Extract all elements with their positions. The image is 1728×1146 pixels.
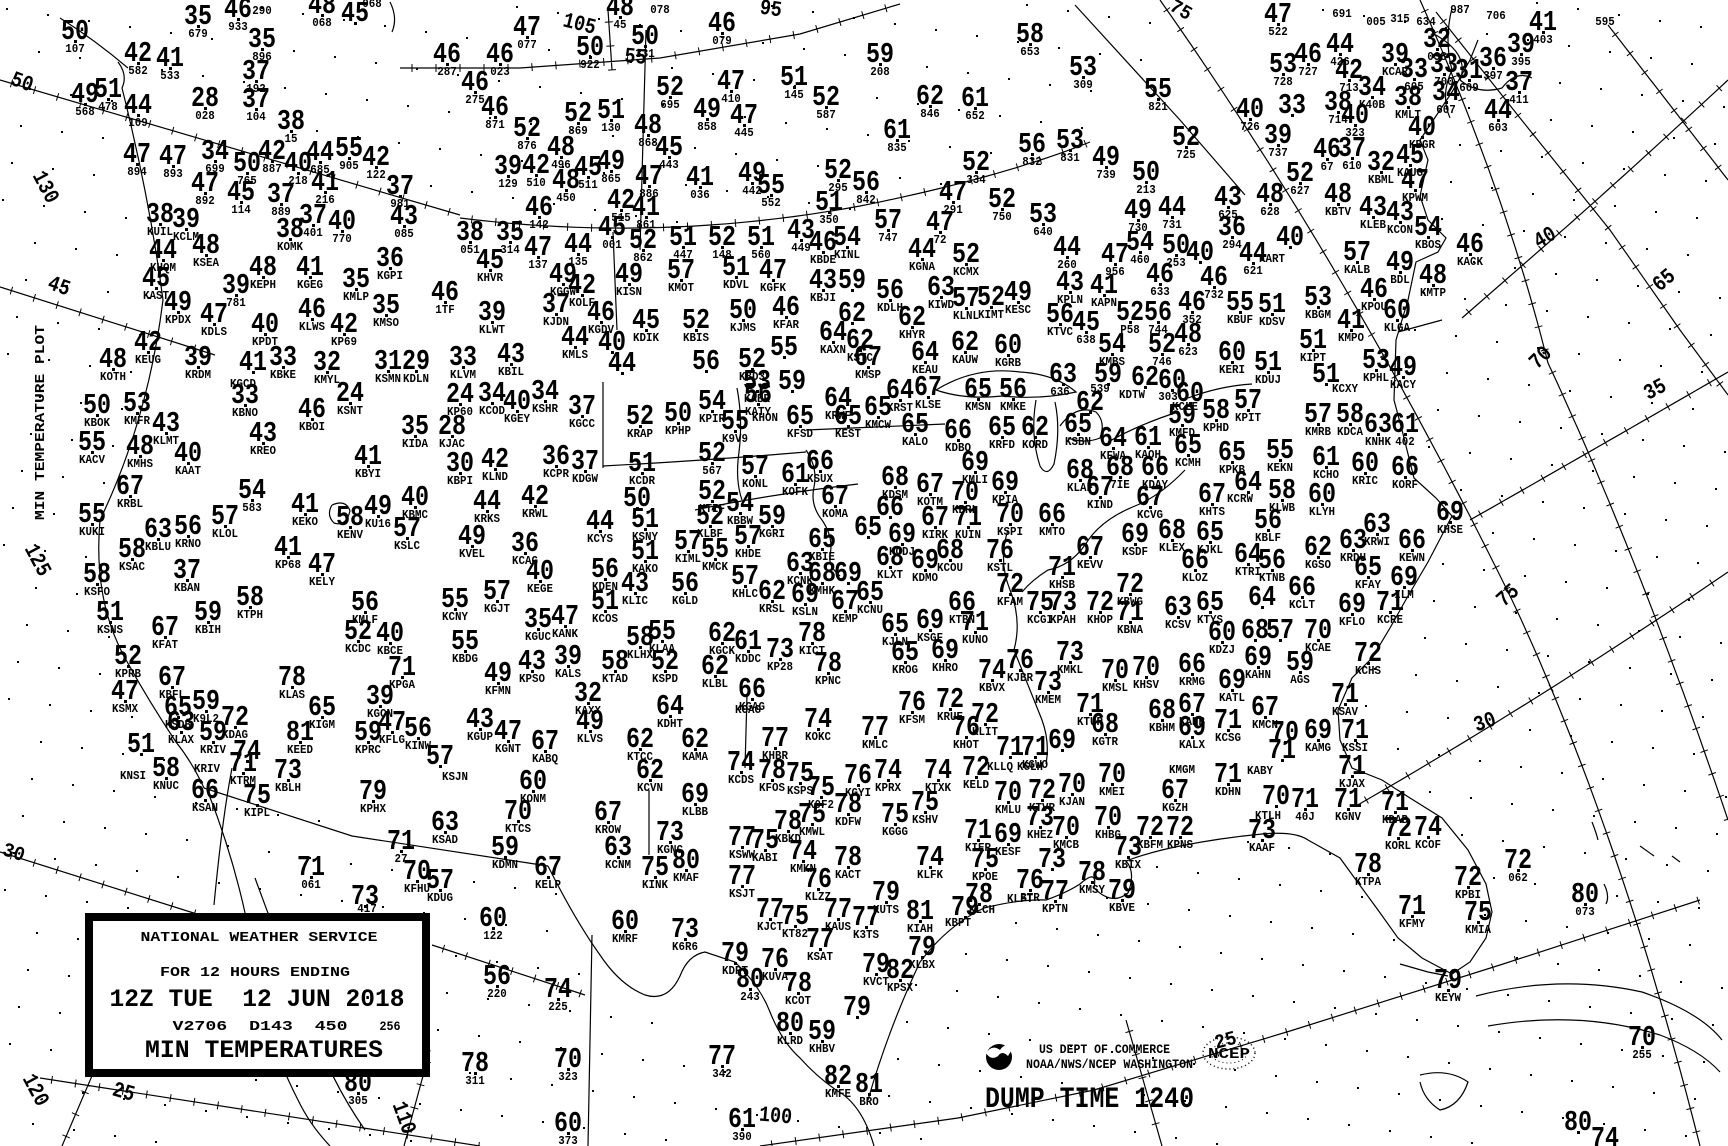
svg-text:KCON: KCON [1387,223,1413,237]
svg-text:KDLS: KDLS [201,325,227,339]
svg-text:KCSG: KCSG [1215,731,1241,745]
svg-text:KBLU: KBLU [145,540,171,554]
svg-text:KBJI: KBJI [810,291,836,305]
svg-text:449: 449 [791,241,811,255]
svg-text:KCSV: KCSV [1165,618,1192,632]
svg-text:KLOZ: KLOZ [1182,571,1208,585]
svg-text:858: 858 [697,120,717,134]
svg-text:KJBR: KJBR [1007,671,1034,685]
svg-text:KMHS: KMHS [127,457,153,471]
svg-text:MIN TEMPERATURE PLOT: MIN TEMPERATURE PLOT [33,325,49,520]
svg-text:KCLE: KCLE [1172,400,1198,414]
svg-text:NCEP: NCEP [1208,1046,1250,1063]
svg-text:KCXY: KCXY [1332,382,1359,396]
svg-text:KLBB: KLBB [682,805,708,819]
svg-text:KATL: KATL [1219,691,1245,705]
svg-text:KFAR: KFAR [773,318,800,332]
svg-text:KMOT: KMOT [668,281,694,295]
svg-text:K3TS: K3TS [853,928,879,942]
svg-text:KPNC: KPNC [815,674,841,688]
svg-text:KTVC: KTVC [1047,325,1073,339]
svg-text:511: 511 [578,178,598,192]
svg-text:KCYS: KCYS [587,532,613,546]
svg-text:KAUW: KAUW [952,353,979,367]
svg-text:107: 107 [65,42,85,56]
svg-text:311: 311 [465,1074,485,1088]
svg-text:078: 078 [650,3,670,17]
svg-text:KORD: KORD [1022,438,1048,452]
svg-text:KRNO: KRNO [175,537,201,551]
svg-text:KCOT: KCOT [785,994,811,1008]
svg-text:922: 922 [580,58,600,72]
svg-text:KMEI: KMEI [1099,785,1125,799]
svg-text:653: 653 [1020,45,1040,59]
svg-text:KGRI: KGRI [759,527,785,541]
svg-text:KFLO: KFLO [1339,615,1365,629]
svg-text:KLCH: KLCH [969,903,995,917]
svg-text:KSAD: KSAD [432,833,458,847]
svg-text:KEUG: KEUG [135,353,161,367]
svg-text:KP28: KP28 [767,660,793,674]
svg-text:KDVL: KDVL [723,278,749,292]
svg-text:KACV: KACV [79,453,106,467]
svg-text:59: 59 [838,264,866,297]
svg-text:KLGA: KLGA [1384,321,1411,335]
svg-text:KBPT: KBPT [945,916,971,930]
svg-text:KDGW: KDGW [572,472,599,486]
svg-text:KMSL: KMSL [1102,681,1128,695]
svg-text:KCHS: KCHS [1355,664,1381,678]
svg-text:KPHL: KPHL [1363,371,1389,385]
svg-text:KRBL: KRBL [117,497,143,511]
svg-text:KLRD: KLRD [777,1034,803,1048]
svg-text:652: 652 [965,109,985,123]
svg-text:728: 728 [1273,75,1293,89]
svg-text:KHRO: KHRO [932,661,958,675]
svg-text:KGEG: KGEG [297,278,323,292]
svg-text:582: 582 [128,64,148,78]
svg-text:KCNY: KCNY [442,610,469,624]
svg-text:256: 256 [380,1019,401,1034]
svg-text:832: 832 [1022,155,1042,169]
svg-text:KHEZ: KHEZ [1027,828,1053,842]
svg-text:510: 510 [526,176,546,190]
svg-text:732: 732 [1204,288,1224,302]
svg-text:KAAF: KAAF [1249,841,1275,855]
svg-text:KPTN: KPTN [1042,902,1068,916]
svg-text:KBOS: KBOS [1415,238,1441,252]
svg-text:KMFR: KMFR [124,414,151,428]
svg-text:835: 835 [887,141,907,155]
svg-text:KPSO: KPSO [519,672,545,686]
svg-text:390: 390 [732,1130,752,1144]
svg-text:KERI: KERI [1219,363,1245,377]
svg-text:595: 595 [1595,15,1615,29]
svg-text:KPAH: KPAH [1050,613,1076,627]
svg-text:533: 533 [160,69,180,83]
svg-text:628: 628 [1260,205,1280,219]
svg-text:255: 255 [1632,1048,1652,1062]
svg-text:KIPL: KIPL [244,806,270,820]
svg-text:55: 55 [770,331,798,364]
svg-text:KEKO: KEKO [292,515,318,529]
svg-text:KCNM: KCNM [605,858,631,872]
svg-text:KGLD: KGLD [672,594,698,608]
svg-text:KCOU: KCOU [937,561,963,575]
svg-text:587: 587 [816,108,836,122]
svg-text:KCPR: KCPR [543,467,570,481]
svg-text:KEPH: KEPH [250,278,276,292]
svg-text:KSJT: KSJT [729,887,755,901]
svg-text:KHDE: KHDE [735,547,761,561]
svg-text:KBTV: KBTV [1325,205,1352,219]
svg-text:KSAN: KSAN [192,801,218,815]
svg-text:068: 068 [362,0,382,11]
svg-text:KLFK: KLFK [917,868,944,882]
svg-text:KELY: KELY [309,575,336,589]
svg-text:609: 609 [1459,81,1479,95]
svg-text:59: 59 [778,365,806,398]
svg-text:KDUG: KDUG [427,891,453,905]
svg-text:077: 077 [517,38,537,52]
svg-text:KIML: KIML [675,552,701,566]
svg-text:KBHM: KBHM [1149,721,1175,735]
svg-text:114: 114 [231,203,251,217]
svg-text:225: 225 [548,1000,568,1014]
svg-text:781: 781 [226,296,246,310]
svg-text:KHSE: KHSE [1437,523,1463,537]
svg-text:KFLG: KFLG [379,733,405,747]
svg-text:KRIV: KRIV [194,762,221,776]
svg-text:KOKC: KOKC [805,730,831,744]
svg-text:142: 142 [529,218,549,232]
svg-text:KFOS: KFOS [759,781,785,795]
svg-text:FOR 12 HOURS ENDING: FOR 12 HOURS ENDING [160,965,350,981]
svg-text:KACY: KACY [1390,378,1417,392]
svg-text:KCOD: KCOD [479,404,505,418]
svg-text:KSLC: KSLC [394,539,420,553]
svg-text:KLFT: KLFT [1007,892,1033,906]
svg-text:KGPI: KGPI [377,269,403,283]
svg-text:905: 905 [339,159,359,173]
svg-text:KJCT: KJCT [757,920,783,934]
svg-text:KDSV: KDSV [1259,315,1286,329]
svg-text:KBML: KBML [1368,173,1394,187]
svg-text:33: 33 [1278,89,1306,122]
svg-text:KRAP: KRAP [627,427,653,441]
svg-text:137: 137 [528,258,548,272]
svg-text:KEVV: KEVV [1077,558,1104,572]
svg-text:636: 636 [1050,385,1070,399]
svg-text:KLIC: KLIC [622,594,648,608]
svg-text:KACK: KACK [1457,255,1484,269]
svg-text:KALO: KALO [902,435,928,449]
svg-text:KSAC: KSAC [119,560,145,574]
svg-text:80: 80 [1564,1106,1592,1139]
svg-text:KCRW: KCRW [1227,492,1254,506]
svg-text:KMGM: KMGM [1169,763,1195,777]
svg-text:KAAT: KAAT [175,464,201,478]
svg-text:44: 44 [608,347,636,380]
svg-text:568: 568 [75,105,95,119]
svg-text:KLEB: KLEB [1360,218,1386,232]
svg-text:KMCW: KMCW [865,418,892,432]
svg-text:51: 51 [127,728,155,761]
svg-text:KRIC: KRIC [1352,474,1378,488]
svg-text:933: 933 [228,20,248,34]
svg-text:79: 79 [843,991,871,1024]
svg-text:KLWT: KLWT [479,323,505,337]
svg-text:95: 95 [758,0,783,23]
svg-text:KLWS: KLWS [299,320,325,334]
svg-text:40: 40 [1276,221,1304,254]
svg-text:KMCK: KMCK [702,560,729,574]
svg-text:KCNU: KCNU [857,603,883,617]
svg-text:539: 539 [1090,382,1110,396]
svg-text:KEGE: KEGE [527,582,553,596]
svg-text:842: 842 [856,193,876,207]
svg-text:KBVX: KBVX [979,681,1006,695]
svg-text:KDCA: KDCA [1337,425,1364,439]
svg-text:KGUP: KGUP [467,730,493,744]
svg-text:BRO: BRO [859,1095,879,1109]
svg-text:KRWF: KRWF [825,409,851,423]
svg-text:KMTO: KMTO [1039,525,1065,539]
svg-text:894: 894 [127,165,147,179]
svg-text:KSHV: KSHV [912,813,939,827]
svg-text:737: 737 [1268,146,1288,160]
svg-text:987: 987 [1450,3,1470,17]
svg-text:KRWL: KRWL [522,507,548,521]
svg-text:KPDX: KPDX [165,313,192,327]
svg-text:KCLT: KCLT [1289,598,1315,612]
svg-text:KCMH: KCMH [1175,456,1201,470]
svg-text:KUTS: KUTS [873,903,899,917]
svg-text:323: 323 [558,1070,578,1084]
svg-text:KIND: KIND [1087,498,1113,512]
svg-text:74: 74 [1591,1122,1619,1146]
svg-text:KDZJ: KDZJ [1209,643,1235,657]
svg-text:KOMA: KOMA [822,507,849,521]
svg-text:062: 062 [1508,871,1528,885]
svg-text:MIN TEMPERATURES: MIN TEMPERATURES [145,1036,383,1065]
svg-text:621: 621 [1243,264,1263,278]
svg-text:739: 739 [1096,168,1116,182]
svg-text:KU16: KU16 [365,517,391,531]
svg-text:KCMX: KCMX [953,265,980,279]
svg-text:KRFD: KRFD [989,438,1015,452]
svg-text:KPRC: KPRC [355,743,381,757]
svg-text:KBNA: KBNA [1117,623,1144,637]
svg-text:1TF: 1TF [435,303,455,317]
svg-text:397: 397 [1483,69,1503,83]
svg-text:640: 640 [1033,225,1053,239]
svg-text:NOAA/NWS/NCEP WASHINGTON: NOAA/NWS/NCEP WASHINGTON [1026,1058,1193,1072]
svg-text:KMLP: KMLP [343,290,369,304]
svg-text:450: 450 [556,191,576,205]
svg-text:695: 695 [660,98,680,112]
svg-text:KREO: KREO [250,444,276,458]
svg-text:KMFE: KMFE [825,1087,851,1101]
svg-text:KHLC: KHLC [732,587,758,601]
svg-text:69: 69 [1048,724,1076,757]
svg-text:12Z TUE 12 JUN 2018: 12Z TUE 12 JUN 2018 [110,985,405,1014]
svg-text:KSNS: KSNS [97,623,123,637]
svg-text:64: 64 [1248,581,1276,614]
svg-text:KUKI: KUKI [79,525,105,539]
svg-text:KAHN: KAHN [1245,668,1271,682]
svg-text:KBDG: KBDG [452,652,478,666]
svg-text:KCOS: KCOS [592,612,618,626]
svg-text:208: 208 [870,65,890,79]
svg-text:831: 831 [1060,151,1080,165]
svg-text:KLYH: KLYH [1309,505,1335,519]
svg-text:309: 309 [1073,78,1093,92]
svg-text:KFMN: KFMN [485,684,511,698]
svg-text:KSEA: KSEA [193,256,220,270]
svg-text:036: 036 [690,188,710,202]
svg-text:KBUF: KBUF [1227,313,1253,327]
svg-text:KRDM: KRDM [185,368,211,382]
svg-text:638: 638 [1076,333,1096,347]
svg-text:KALX: KALX [1179,738,1206,752]
svg-text:KHVR: KHVR [477,271,504,285]
svg-text:KROG: KROG [892,663,918,677]
svg-text:KENV: KENV [337,528,364,542]
svg-text:KCDC: KCDC [345,642,371,656]
svg-text:KHOT: KHOT [953,738,979,752]
svg-text:KESC: KESC [1005,303,1031,317]
svg-text:KCVN: KCVN [637,781,663,795]
svg-text:028: 028 [195,109,215,123]
svg-text:401: 401 [303,226,323,240]
svg-text:KMLC: KMLC [862,738,888,752]
svg-text:846: 846 [920,107,940,121]
svg-text:KRIV: KRIV [200,743,227,757]
svg-text:KT82: KT82 [782,927,808,941]
svg-text:KHOP: KHOP [1087,613,1113,627]
svg-text:KSMX: KSMX [112,702,139,716]
svg-text:K0F2: K0F2 [808,798,834,812]
svg-text:KOFK: KOFK [782,485,809,499]
svg-text:122: 122 [366,168,386,182]
svg-text:KFSM: KFSM [899,713,925,727]
svg-text:001: 001 [602,238,622,252]
svg-text:305: 305 [348,1094,368,1108]
svg-text:US DEPT OF COMMERCE: US DEPT OF COMMERCE [1039,1043,1170,1057]
svg-text:KIDA: KIDA [402,437,429,451]
svg-text:887: 887 [262,162,282,176]
svg-text:KAXN: KAXN [820,343,846,357]
svg-text:KPIT: KPIT [1235,411,1261,425]
svg-text:KABY: KABY [1247,764,1274,778]
svg-text:KMRB: KMRB [1305,425,1331,439]
svg-text:KBOI: KBOI [299,420,325,434]
svg-text:KGLH: KGLH [1017,760,1043,774]
svg-text:V2706 D143 450: V2706 D143 450 [173,1019,348,1035]
svg-text:KHSV: KHSV [1133,678,1160,692]
svg-text:KDLN: KDLN [403,372,429,386]
svg-text:KBIX: KBIX [1115,858,1142,872]
svg-text:KNSI: KNSI [120,769,146,783]
svg-text:KTAD: KTAD [602,672,628,686]
svg-text:627: 627 [1290,184,1310,198]
svg-text:KIWD: KIWD [928,298,954,312]
svg-text:KSPD: KSPD [652,672,678,686]
svg-text:109: 109 [128,116,148,130]
svg-text:KLNL: KLNL [953,309,979,323]
svg-text:KHON: KHON [752,411,778,425]
svg-text:522: 522 [1268,25,1288,39]
svg-text:45: 45 [614,18,627,32]
svg-text:KGCD: KGCD [230,377,256,391]
svg-text:KMTP: KMTP [1420,286,1446,300]
svg-text:603: 603 [1488,121,1508,135]
svg-text:KVEL: KVEL [459,547,485,561]
svg-text:KDMO: KDMO [912,571,938,585]
svg-text:403: 403 [1533,33,1553,47]
svg-text:552: 552 [761,196,781,210]
svg-text:KLOL: KLOL [212,527,238,541]
svg-text:BDL: BDL [1390,273,1410,287]
svg-text:KFMY: KFMY [1399,917,1426,931]
svg-text:KBGM: KBGM [1305,308,1331,322]
svg-text:KRMG: KRMG [1179,675,1205,689]
svg-text:KPHX: KPHX [360,802,387,816]
svg-text:KISN: KISN [616,285,642,299]
svg-text:KDTW: KDTW [1119,388,1146,402]
svg-text:KBIH: KBIH [195,623,221,637]
svg-text:KTRM: KTRM [230,774,256,788]
svg-text:KBVE: KBVE [1109,901,1135,915]
svg-text:KDHN: KDHN [1215,785,1241,799]
svg-text:KORF: KORF [1392,478,1418,492]
svg-text:725: 725 [1176,148,1196,162]
svg-text:726: 726 [1240,120,1260,134]
svg-text:122: 122 [483,929,503,943]
svg-text:KEKN: KEKN [1267,461,1293,475]
svg-text:KLLQ: KLLQ [987,760,1013,774]
svg-text:679: 679 [188,27,208,41]
svg-text:747: 747 [878,231,898,245]
svg-text:KABQ: KABQ [532,752,558,766]
svg-text:KUNO: KUNO [962,633,988,647]
svg-text:287: 287 [437,65,457,79]
svg-text:15: 15 [285,132,298,146]
svg-text:KGCC: KGCC [569,417,595,431]
svg-text:583: 583 [242,501,262,515]
svg-text:KLAS: KLAS [279,688,305,702]
svg-text:KPHP: KPHP [665,424,691,438]
svg-text:KAMG: KAMG [1305,741,1331,755]
svg-text:KTLH: KTLH [1255,809,1281,823]
svg-text:KGUC: KGUC [525,630,551,644]
svg-text:402: 402 [1395,435,1415,449]
svg-text:KMRF: KMRF [612,932,638,946]
svg-text:KSBN: KSBN [1065,435,1091,449]
svg-text:KDMN: KDMN [492,858,518,872]
svg-text:KAMA: KAMA [682,750,709,764]
svg-text:623: 623 [1178,345,1198,359]
svg-text:607: 607 [1436,103,1456,117]
svg-text:KMLU: KMLU [995,803,1021,817]
svg-text:KINK: KINK [642,878,669,892]
svg-text:KOTH: KOTH [100,370,126,384]
svg-text:KSMN: KSMN [375,372,401,386]
svg-text:KFSD: KFSD [787,427,813,441]
svg-text:373: 373 [558,1134,578,1146]
svg-text:KFAM: KFAM [997,595,1023,609]
